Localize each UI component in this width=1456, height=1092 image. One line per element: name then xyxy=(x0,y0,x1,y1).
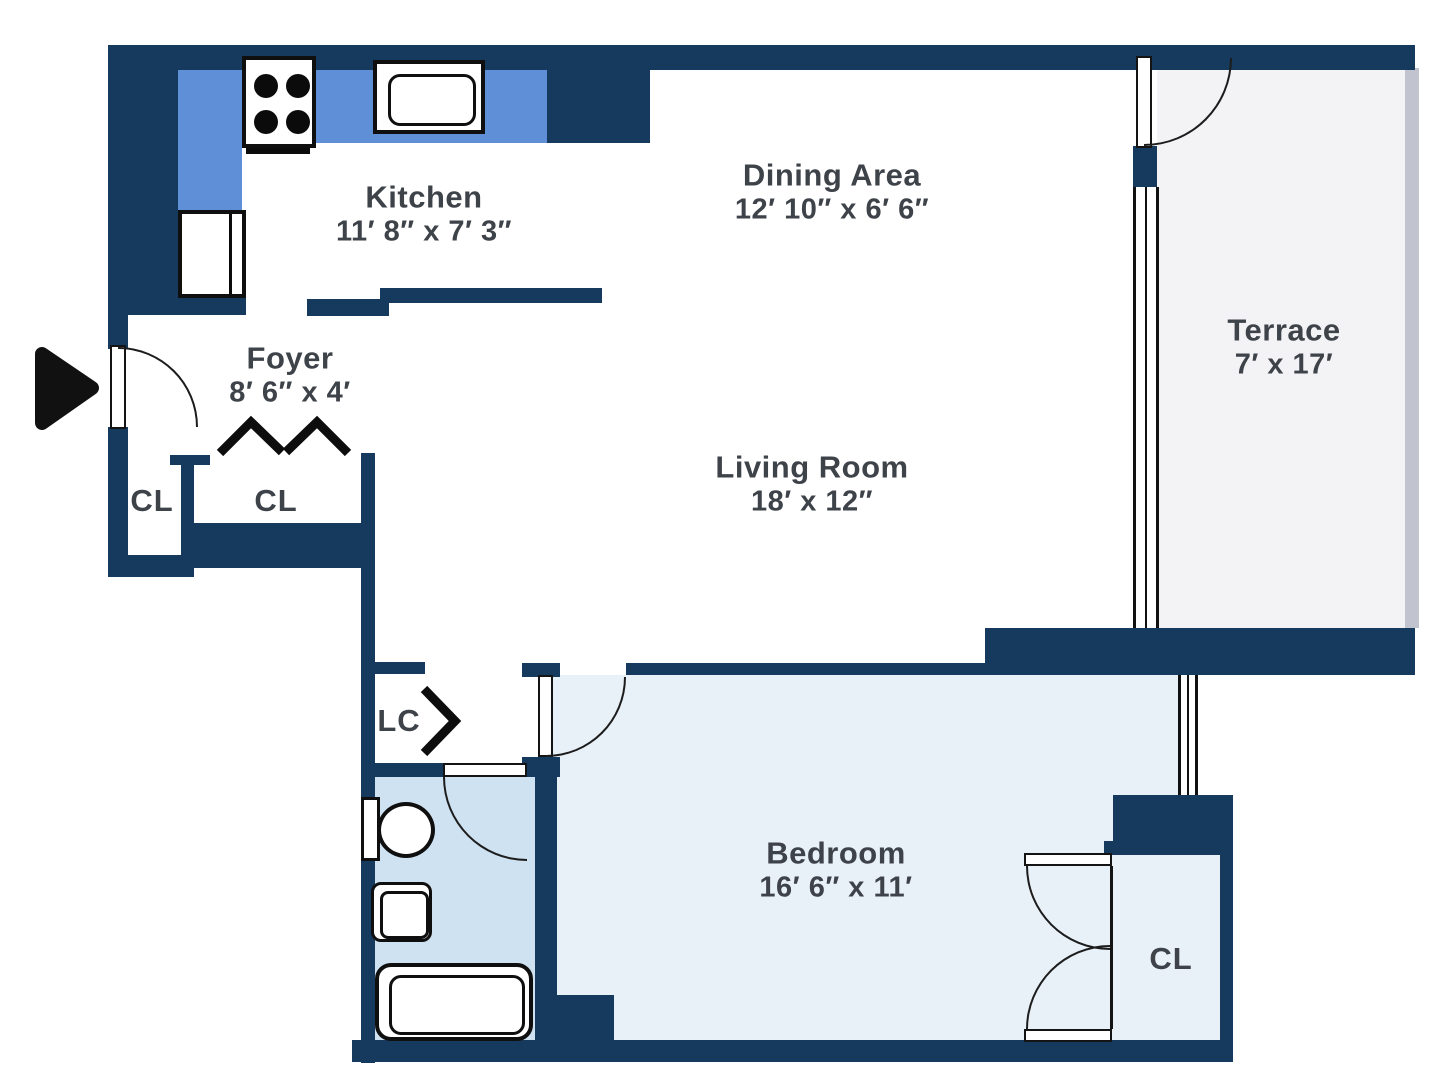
wall-segment xyxy=(108,555,194,577)
room-name: Kitchen xyxy=(336,180,512,215)
room-dimensions: 7′ x 17′ xyxy=(1227,348,1340,380)
wall-segment xyxy=(380,288,602,303)
bathroom-sink-icon xyxy=(371,882,432,942)
kitchen-counter-top xyxy=(178,58,547,143)
closet-door-top-leaf xyxy=(1024,853,1112,866)
refrigerator-door-line xyxy=(229,214,232,294)
wall-segment xyxy=(108,313,128,349)
stove-front-bar xyxy=(246,148,310,154)
wall-segment xyxy=(307,299,389,316)
kitchen-label: Kitchen 11′ 8″ x 7′ 3″ xyxy=(336,180,512,247)
linen-closet-label: LC xyxy=(377,703,420,739)
wall-segment xyxy=(352,1040,1233,1062)
terrace-label: Terrace 7′ x 17′ xyxy=(1227,313,1340,380)
wall-segment xyxy=(1220,853,1233,1042)
burner-icon xyxy=(286,110,310,134)
wall-segment xyxy=(194,523,364,568)
closet-opening-line xyxy=(1110,866,1113,1029)
window-mullion xyxy=(1145,187,1147,628)
toilet-bowl xyxy=(377,802,435,858)
wall-segment xyxy=(548,995,614,1042)
wall-segment xyxy=(1133,146,1157,187)
wall-segment xyxy=(1113,795,1233,855)
wall-segment xyxy=(626,663,986,675)
floor-plan: Kitchen 11′ 8″ x 7′ 3″ Dining Area 12′ 1… xyxy=(0,0,1456,1092)
room-dimensions: 16′ 6″ x 11′ xyxy=(759,871,912,903)
wall-segment xyxy=(178,296,246,315)
bedroom-window xyxy=(1178,675,1198,795)
wall-segment xyxy=(108,427,128,560)
entry-door-swing xyxy=(118,347,198,427)
bathtub-icon xyxy=(375,963,533,1041)
kitchen-counter-left xyxy=(178,143,242,210)
zigzag-bifold-doors-icon xyxy=(220,422,282,453)
window-mullion xyxy=(1187,675,1189,795)
burner-icon xyxy=(286,74,310,98)
zigzag-bifold-doors-icon xyxy=(286,422,348,453)
room-name: Dining Area xyxy=(735,158,929,193)
kitchen-sink-icon xyxy=(373,60,485,134)
tub-basin xyxy=(389,975,525,1035)
wall-segment xyxy=(108,45,178,315)
dining-area-label: Dining Area 12′ 10″ x 6′ 6″ xyxy=(735,158,929,225)
room-name: Living Room xyxy=(715,450,908,485)
burner-icon xyxy=(254,110,278,134)
wall-segment xyxy=(181,463,194,555)
refrigerator-icon xyxy=(178,210,246,298)
closet-foyer-right-label: CL xyxy=(254,483,297,519)
chevron-accordion-door-icon xyxy=(424,689,455,753)
room-name: Foyer xyxy=(229,341,350,376)
stove-burners-icon xyxy=(242,56,316,148)
wall-segment xyxy=(375,763,443,777)
foyer-label: Foyer 8′ 6″ x 4′ xyxy=(229,341,350,408)
closet-bedroom-label: CL xyxy=(1149,941,1192,977)
entry-arrow-icon xyxy=(42,354,92,423)
living-room-label: Living Room 18′ x 12″ xyxy=(715,450,908,517)
wall-segment xyxy=(375,662,425,674)
wall-segment xyxy=(985,628,1415,675)
bathroom-door-leaf xyxy=(443,763,527,777)
room-dimensions: 12′ 10″ x 6′ 6″ xyxy=(735,193,929,225)
closet-door-bottom-leaf xyxy=(1024,1029,1112,1042)
room-name: Terrace xyxy=(1227,313,1340,348)
sink-basin xyxy=(380,891,429,939)
room-dimensions: 18′ x 12″ xyxy=(715,485,908,517)
sink-basin xyxy=(388,74,476,126)
burner-icon xyxy=(254,74,278,98)
terrace-window xyxy=(1133,187,1159,628)
room-dimensions: 8′ 6″ x 4′ xyxy=(229,376,350,408)
wall-segment xyxy=(547,45,650,143)
room-dimensions: 11′ 8″ x 7′ 3″ xyxy=(336,215,512,247)
room-name: Bedroom xyxy=(759,836,912,871)
closet-foyer-left-label: CL xyxy=(130,483,173,519)
terrace-edge-strip xyxy=(1405,68,1419,628)
bedroom-label: Bedroom 16′ 6″ x 11′ xyxy=(759,836,912,903)
wall-segment xyxy=(361,453,375,1063)
